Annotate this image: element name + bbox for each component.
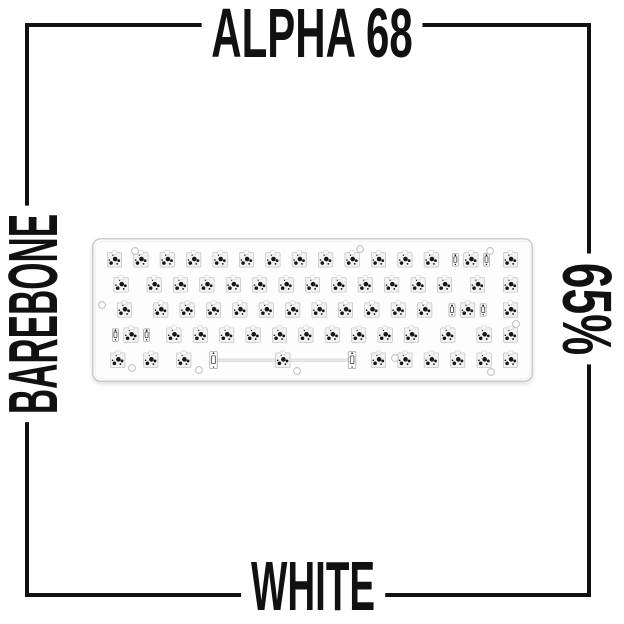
color-label: WHITE [241, 551, 385, 621]
size-text: 65% [552, 263, 622, 355]
keyboard-product-image [92, 238, 533, 382]
barebone-text: BAREBONE [0, 214, 68, 414]
color-text: WHITE [251, 551, 375, 621]
size-label: 65% [552, 254, 622, 365]
product-name-label: ALPHA 68 [202, 0, 423, 68]
keyboard-svg [92, 238, 533, 382]
product-name-text: ALPHA 68 [211, 0, 412, 68]
barebone-label: BAREBONE [0, 206, 68, 422]
product-card: ALPHA 68 BAREBONE 65% WHITE [0, 0, 624, 624]
